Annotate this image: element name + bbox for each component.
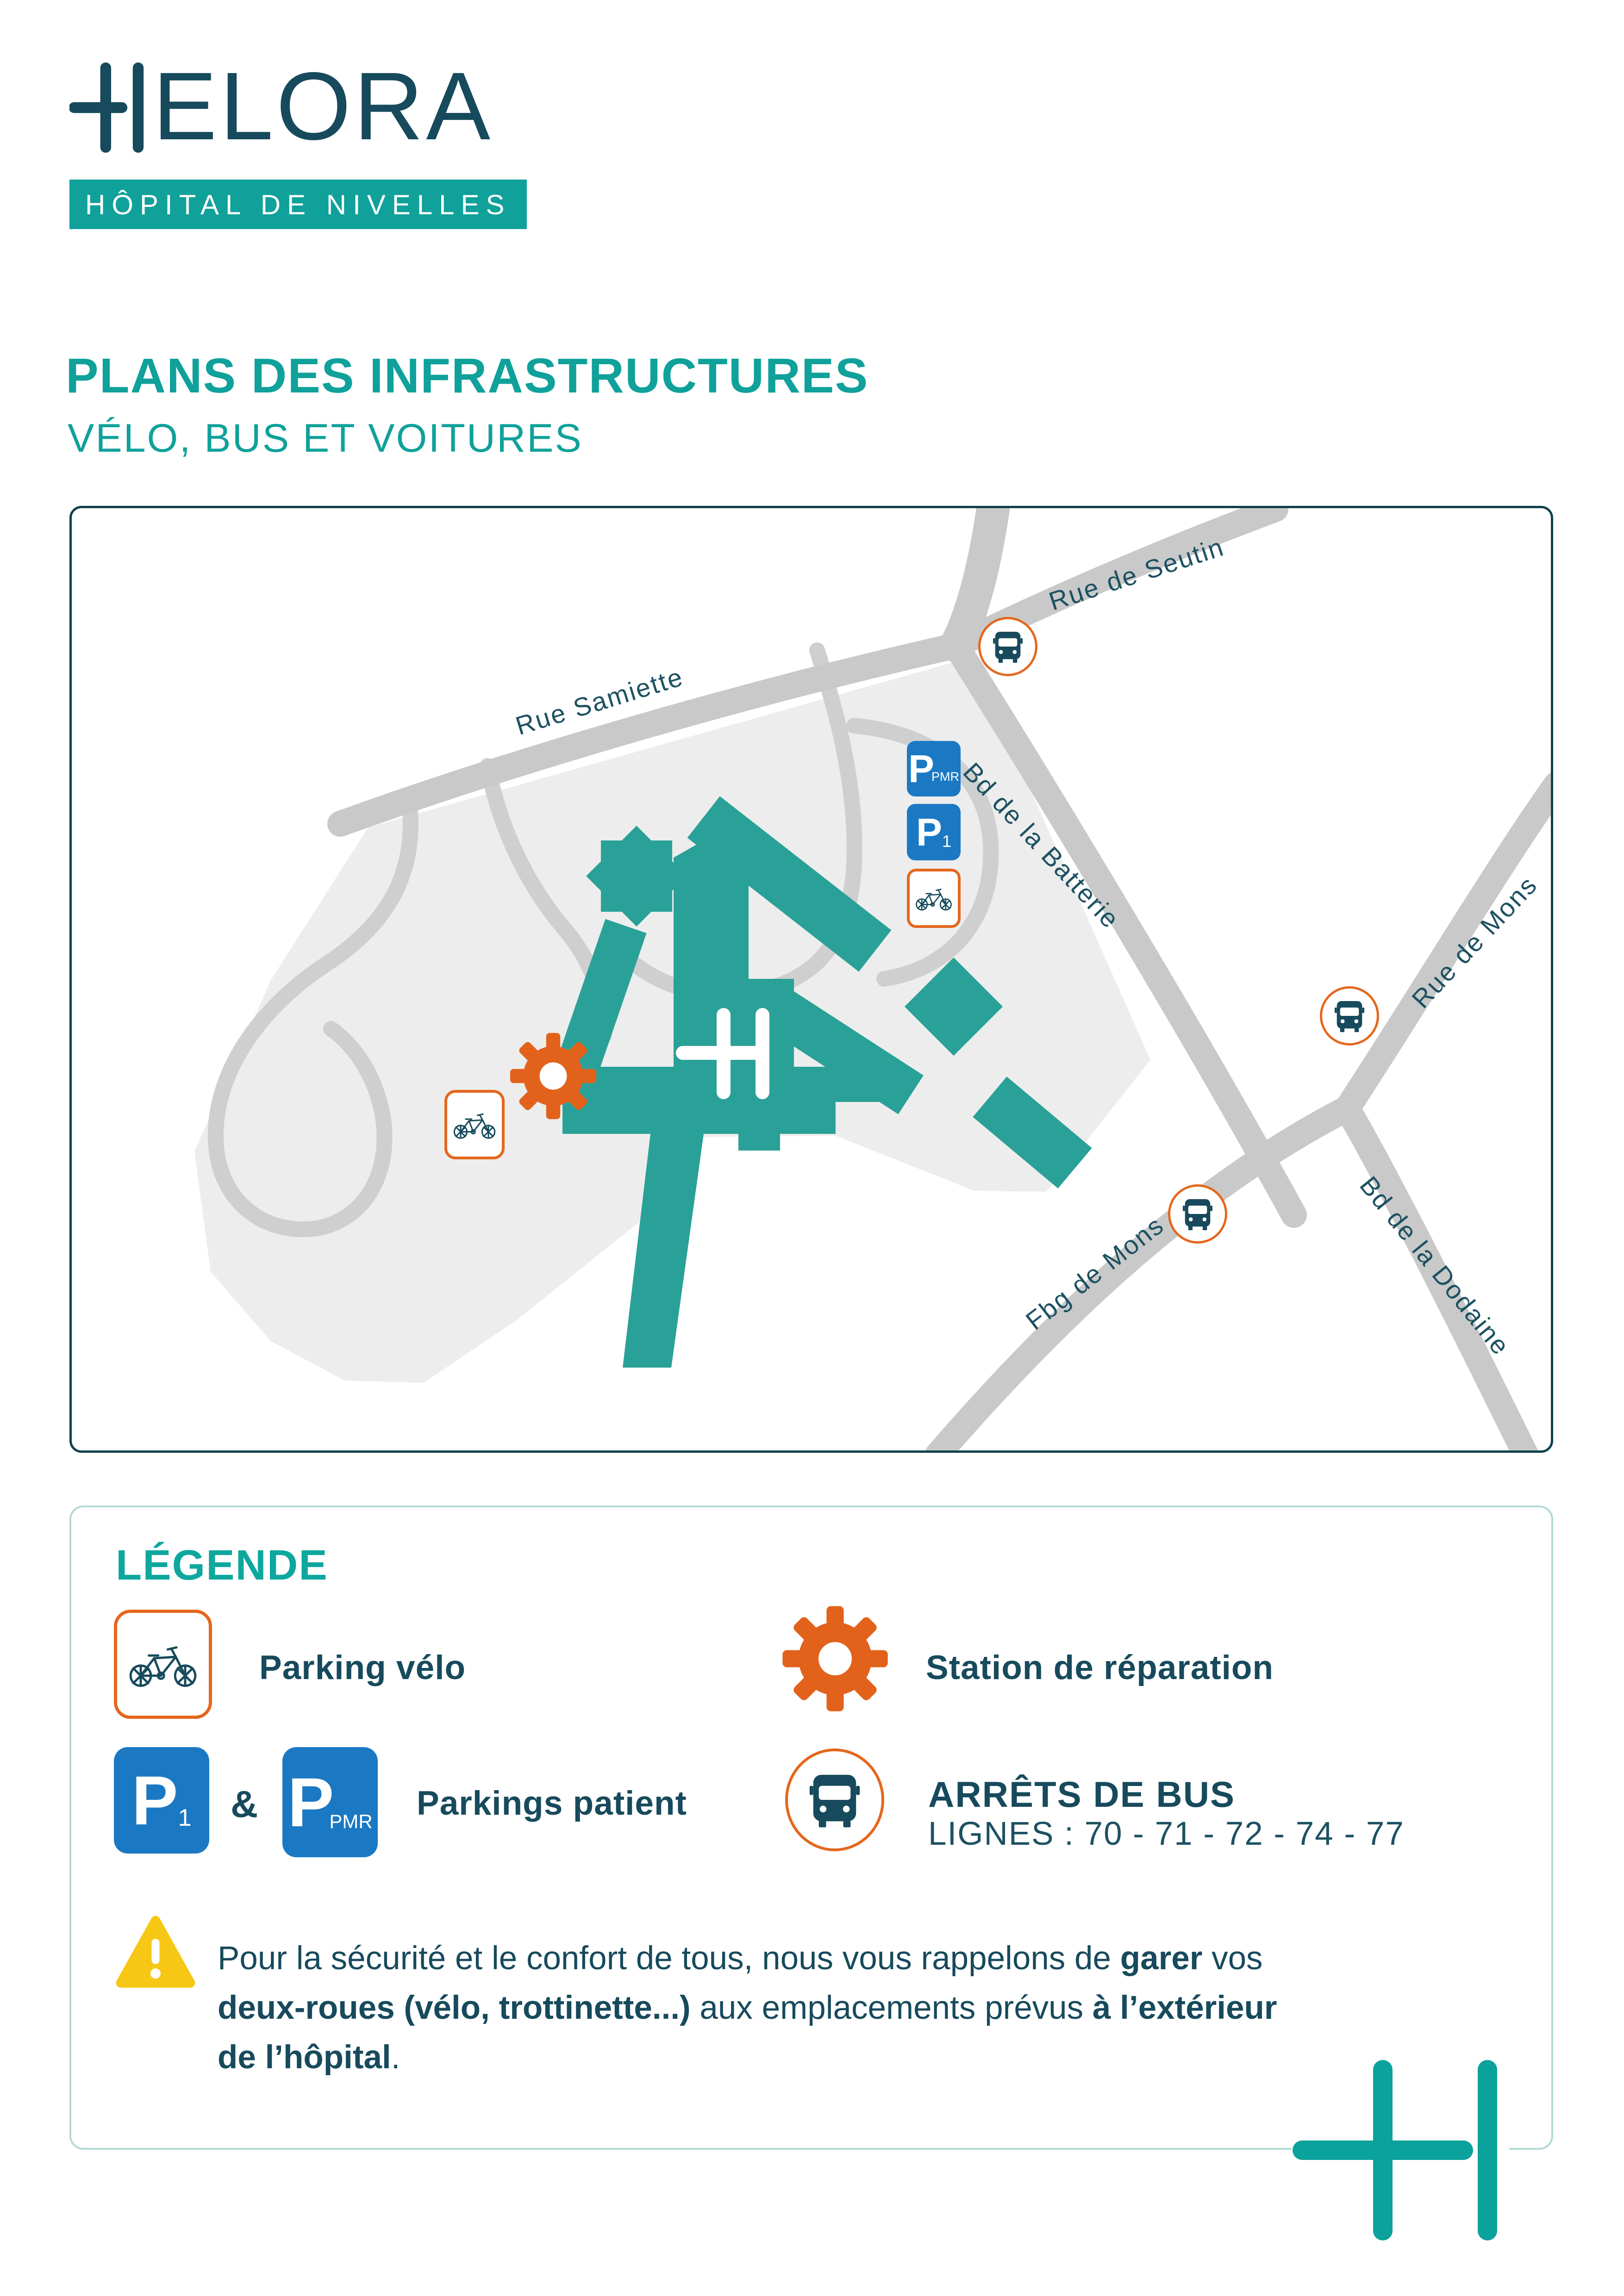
bus-stop-icon-batterie bbox=[1168, 1184, 1227, 1244]
ampersand: & bbox=[231, 1783, 258, 1826]
p-letter: P bbox=[908, 747, 934, 791]
helora-logo: ELORA bbox=[69, 62, 493, 155]
site-map: Rue de Seutin Rue Samiette Bd de la Batt… bbox=[69, 506, 1553, 1453]
building-slab-step bbox=[738, 1133, 780, 1151]
pmr-label: PMR bbox=[931, 770, 959, 784]
bus-icon bbox=[804, 1769, 865, 1830]
legend-p1-sign: P1 bbox=[114, 1747, 209, 1854]
legend-pmr-sign: PPMR bbox=[282, 1747, 378, 1857]
helora-h-mark bbox=[1292, 2055, 1509, 2246]
bike-parking-icon-east bbox=[907, 869, 961, 928]
bike-icon bbox=[126, 1638, 200, 1690]
bus-icon bbox=[990, 628, 1026, 665]
warning-line-2: deux-roues (vélo, trottinette...) aux em… bbox=[218, 1983, 1551, 2033]
page-title: PLANS DES INFRASTRUCTURES bbox=[66, 348, 868, 404]
parking-p1-sign: P1 bbox=[907, 804, 961, 860]
p1-number: 1 bbox=[942, 832, 951, 851]
p-letter: P bbox=[132, 1761, 178, 1841]
repair-station-gear-icon bbox=[509, 1032, 597, 1120]
bike-parking-icon-west bbox=[444, 1090, 505, 1159]
warning-triangle-icon bbox=[116, 1915, 195, 1990]
bike-icon bbox=[914, 884, 954, 912]
p1-number: 1 bbox=[178, 1804, 192, 1832]
legend-label-parkings-patient: Parkings patient bbox=[417, 1784, 687, 1823]
bus-stop-icon-seutin bbox=[978, 617, 1037, 676]
legend-repair-gear-icon bbox=[781, 1605, 889, 1712]
map-drawing bbox=[72, 508, 1553, 1453]
p-letter: P bbox=[287, 1762, 334, 1842]
legend-heading: LÉGENDE bbox=[116, 1541, 328, 1590]
parking-pmr-sign: PPMR bbox=[907, 741, 961, 796]
bus-icon bbox=[1180, 1196, 1216, 1232]
bus-icon bbox=[1331, 998, 1368, 1034]
helora-h-icon bbox=[69, 62, 153, 155]
page-subtitle: VÉLO, BUS ET VOITURES bbox=[68, 416, 583, 461]
legend-bus-lines: LIGNES : 70 - 71 - 72 - 74 - 77 bbox=[928, 1815, 1405, 1853]
legend-label-arrets-de-bus: ARRÊTS DE BUS bbox=[928, 1773, 1235, 1816]
p-letter: P bbox=[916, 810, 942, 855]
building-slab-ext bbox=[833, 1067, 903, 1102]
warning-line-1: Pour la sécurité et le confort de tous, … bbox=[218, 1934, 1551, 1983]
bus-stop-icon-mons bbox=[1320, 986, 1379, 1045]
legend-label-parking-velo: Parking vélo bbox=[259, 1649, 466, 1687]
legend-bike-parking-icon bbox=[114, 1610, 212, 1719]
building-star bbox=[586, 826, 687, 927]
legend-bus-stop-icon bbox=[785, 1748, 884, 1851]
building-slab bbox=[562, 1067, 836, 1134]
bike-icon bbox=[451, 1108, 498, 1141]
helora-wordmark: ELORA bbox=[153, 62, 493, 150]
hospital-banner: HÔPITAL DE NIVELLES bbox=[69, 180, 527, 229]
pmr-label: PMR bbox=[329, 1811, 372, 1833]
legend-label-station-reparation: Station de réparation bbox=[926, 1649, 1274, 1687]
